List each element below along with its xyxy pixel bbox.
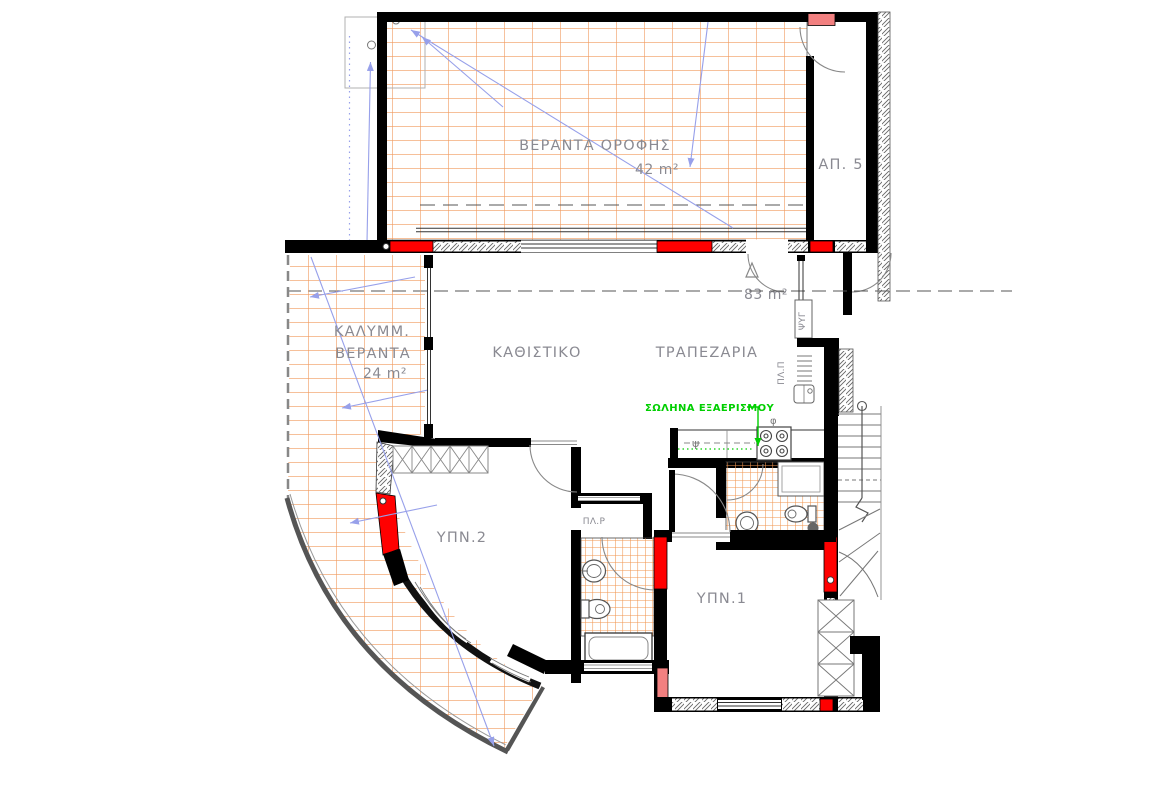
column-section-red xyxy=(810,241,833,252)
column-section-red xyxy=(820,699,833,711)
floor-plan-page: ΒΕΡΑΝΤΑ ΟΡΟΦΗΣ 42 m² 83 m² ΑΠ. 5 xyxy=(0,0,1170,785)
column-section-red xyxy=(390,241,433,252)
covered-veranda-label-2: ΒΕΡΑΝΤΑ xyxy=(335,346,411,362)
roof-veranda-region: ΒΕΡΑΝΤΑ ΟΡΟΦΗΣ 42 m² xyxy=(345,12,880,242)
roof-veranda-label: ΒΕΡΑΝΤΑ ΟΡΟΦΗΣ xyxy=(519,138,671,154)
vent-pipe-label: ΣΩΛΗΝΑ ΕΞΑΕΡΙΣΜΟΥ xyxy=(645,403,774,414)
sink-symbol: ψ xyxy=(692,437,699,450)
dishwasher-label: ΠΛ.Π xyxy=(777,361,787,385)
shower-tray xyxy=(778,462,824,496)
column-section-red xyxy=(657,241,712,252)
apartment-area-label: 83 m² xyxy=(744,287,788,303)
bedroom1-label: ΥΠΝ.1 xyxy=(696,591,747,607)
bedroom2-label: ΥΠΝ.2 xyxy=(436,530,487,546)
floor-plan-canvas: ΒΕΡΑΝΤΑ ΟΡΟΦΗΣ 42 m² 83 m² ΑΠ. 5 xyxy=(0,0,1170,785)
column-section-pink xyxy=(808,14,835,26)
door-leaf xyxy=(669,470,675,532)
fridge-label: ΨΥΓ xyxy=(798,312,808,331)
apartment5-label: ΑΠ. 5 xyxy=(818,157,863,173)
column-section-red xyxy=(654,537,667,589)
roof-veranda-area: 42 m² xyxy=(635,162,679,178)
living-room-label: ΚΑΘΙΣΤΙΚΟ xyxy=(492,345,581,361)
laundry-label: ΠΛ.Ρ xyxy=(583,517,606,527)
bathtub xyxy=(585,633,652,664)
covered-veranda-area: 24 m² xyxy=(363,366,407,382)
dining-room-label: ΤΡΑΠΕΖΑΡΙΑ xyxy=(655,345,758,361)
covered-veranda-label-1: ΚΑΛΥΜΜ. xyxy=(334,324,410,340)
drain-symbol: φ xyxy=(770,416,777,427)
column-section-red xyxy=(824,537,837,592)
